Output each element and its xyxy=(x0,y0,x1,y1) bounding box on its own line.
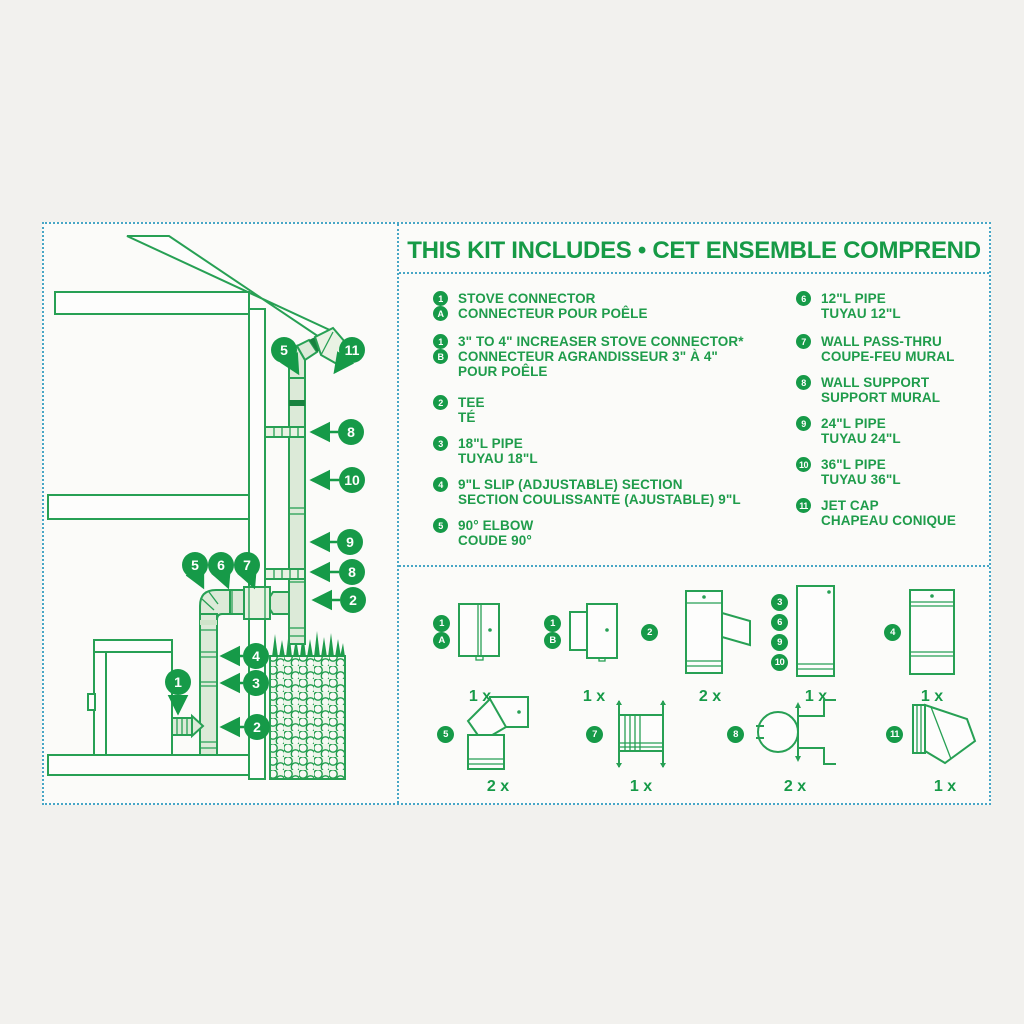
installation-diagram: 5 11 8 10 9 8 2 5 6 7 4 3 2 1 xyxy=(44,224,397,803)
slip-section-illustration xyxy=(909,588,955,676)
house-wall xyxy=(249,309,265,779)
exterior-pipe xyxy=(265,328,345,644)
parts-list-item: 4 9"L SLIP (ADJUSTABLE) SECTIONSECTION C… xyxy=(433,477,741,507)
part-number-badge: 2 xyxy=(641,624,658,641)
quantity-label: 1 x xyxy=(611,778,671,796)
callout-badge: 11 xyxy=(339,337,365,363)
house-ceiling xyxy=(48,292,249,519)
part-cell-wall-support: 8 2 x xyxy=(727,698,838,796)
part-cell-jet-cap: 11 1 x xyxy=(886,698,979,796)
part-cell-stove-connector: 1 A 1 x xyxy=(433,584,502,706)
svg-text:5: 5 xyxy=(280,342,288,358)
jet-cap-illustration xyxy=(911,701,979,767)
quantity-label: 2 x xyxy=(752,778,838,796)
part-number-badge: 1 xyxy=(433,334,448,349)
wall-pass-thru xyxy=(244,587,270,619)
callout-badge: 10 xyxy=(339,467,365,493)
wall-support-bracket xyxy=(265,427,305,437)
kit-includes-title: THIS KIT INCLUDES • CET ENSEMBLE COMPREN… xyxy=(399,231,989,271)
part-number-badge: 8 xyxy=(796,375,811,390)
interior-vertical-pipe xyxy=(200,590,230,755)
svg-text:10: 10 xyxy=(344,472,360,488)
svg-text:1: 1 xyxy=(174,674,182,690)
part-number-badge: 1 xyxy=(544,615,561,632)
callout-badge: 2 xyxy=(244,714,270,740)
callout-badge: 9 xyxy=(337,529,363,555)
part-number-badge: 6 xyxy=(796,291,811,306)
kit-list-panel: THIS KIT INCLUDES • CET ENSEMBLE COMPREN… xyxy=(399,224,989,803)
part-letter-badge: A xyxy=(433,306,448,321)
callout-badge: 8 xyxy=(338,419,364,445)
svg-text:3: 3 xyxy=(252,675,260,691)
parts-list-item: 1 A STOVE CONNECTORCONNECTEUR POUR POÊLE xyxy=(433,291,648,321)
part-number-badge: 9 xyxy=(796,416,811,431)
wall-pass-thru-illustration xyxy=(611,699,671,769)
wall-support-illustration xyxy=(752,698,838,770)
quantity-label: 1 x xyxy=(911,778,979,796)
product-instruction-image: { "colors":{"green":"#169A48","line_gree… xyxy=(0,0,1024,1024)
part-number-badge: 9 xyxy=(771,634,788,651)
svg-text:2: 2 xyxy=(253,719,261,735)
part-number-badge: 7 xyxy=(796,334,811,349)
callout-badge: 3 xyxy=(243,670,269,696)
svg-text:2: 2 xyxy=(349,592,357,608)
parts-list-item: 8 WALL SUPPORTSUPPORT MURAL xyxy=(796,375,940,405)
part-number-badge: 8 xyxy=(727,726,744,743)
part-number-badge: 4 xyxy=(433,477,448,492)
part-number-badge: 11 xyxy=(796,498,811,513)
part-cell-elbow: 5 2 x xyxy=(437,698,534,796)
part-number-badge: 5 xyxy=(437,726,454,743)
part-letter-badge: B xyxy=(544,632,561,649)
svg-text:4: 4 xyxy=(252,648,260,664)
part-number-badge: 1 xyxy=(433,615,450,632)
callout-badge: 5 xyxy=(271,337,297,363)
parts-list-item: 9 24"L PIPETUYAU 24"L xyxy=(796,416,901,446)
part-cell-slip-section: 4 1 x xyxy=(884,584,955,706)
wood-stove xyxy=(88,640,172,755)
callout-badge: 4 xyxy=(243,643,269,669)
parts-list-item: 2 TEETÉ xyxy=(433,395,485,425)
part-letter-badge: B xyxy=(433,349,448,364)
callout-badge: 5 xyxy=(182,552,208,578)
svg-text:6: 6 xyxy=(217,557,225,573)
part-number-badge: 11 xyxy=(886,726,903,743)
svg-text:8: 8 xyxy=(348,564,356,580)
part-cell-tee: 2 2 x xyxy=(641,584,754,706)
house-floor xyxy=(48,755,249,775)
parts-list-item: 7 WALL PASS-THRUCOUPE-FEU MURAL xyxy=(796,334,955,364)
elbow-illustration xyxy=(462,695,534,773)
stove-connector-pipe xyxy=(172,716,203,736)
wall-support-bracket xyxy=(265,569,305,579)
quantity-label: 2 x xyxy=(462,778,534,796)
part-cell-increaser: 1 B 1 x xyxy=(544,584,619,706)
grass xyxy=(272,630,345,657)
svg-text:9: 9 xyxy=(346,534,354,550)
part-number-badge: 3 xyxy=(433,436,448,451)
callout-badge: 7 xyxy=(234,552,260,578)
parts-list-item: 5 90° ELBOWCOUDE 90° xyxy=(433,518,533,548)
part-number-badge: 2 xyxy=(433,395,448,410)
svg-text:5: 5 xyxy=(191,557,199,573)
parts-list-item: 10 36"L PIPETUYAU 36"L xyxy=(796,457,901,487)
callout-badge: 1 xyxy=(165,669,191,695)
part-number-badge: 1 xyxy=(433,291,448,306)
part-cell-wall-pass-thru: 7 1 x xyxy=(586,698,671,796)
parts-list-item: 3 18"L PIPETUYAU 18"L xyxy=(433,436,538,466)
callout-badge: 8 xyxy=(339,559,365,585)
callout-badge: 2 xyxy=(340,587,366,613)
part-number-badge: 7 xyxy=(586,726,603,743)
part-number-badge: 10 xyxy=(771,654,788,671)
increaser-connector-illustration xyxy=(569,602,619,662)
parts-list-item: 6 12"L PIPETUYAU 12"L xyxy=(796,291,901,321)
part-number-badge: 5 xyxy=(433,518,448,533)
part-cell-pipe: 3 6 9 10 1 x xyxy=(771,584,836,706)
part-letter-badge: A xyxy=(433,632,450,649)
parts-list-item: 11 JET CAPCHAPEAU CONIQUE xyxy=(796,498,956,528)
part-number-badge: 4 xyxy=(884,624,901,641)
part-number-badge: 6 xyxy=(771,614,788,631)
pipe-illustration xyxy=(796,584,836,680)
kit-contents-card: 5 11 8 10 9 8 2 5 6 7 4 3 2 1 THIS KIT I… xyxy=(42,222,991,805)
parts-list-item: 1 B 3" TO 4" INCREASER STOVE CONNECTOR*C… xyxy=(433,334,744,379)
tee-illustration xyxy=(666,589,754,675)
part-number-badge: 3 xyxy=(771,594,788,611)
svg-text:8: 8 xyxy=(347,424,355,440)
part-number-badge: 10 xyxy=(796,457,811,472)
svg-text:11: 11 xyxy=(345,342,360,358)
callout-badge: 6 xyxy=(208,552,234,578)
ground-stone-pillar xyxy=(270,630,345,779)
svg-text:7: 7 xyxy=(243,557,251,573)
stove-connector-illustration xyxy=(458,601,502,663)
